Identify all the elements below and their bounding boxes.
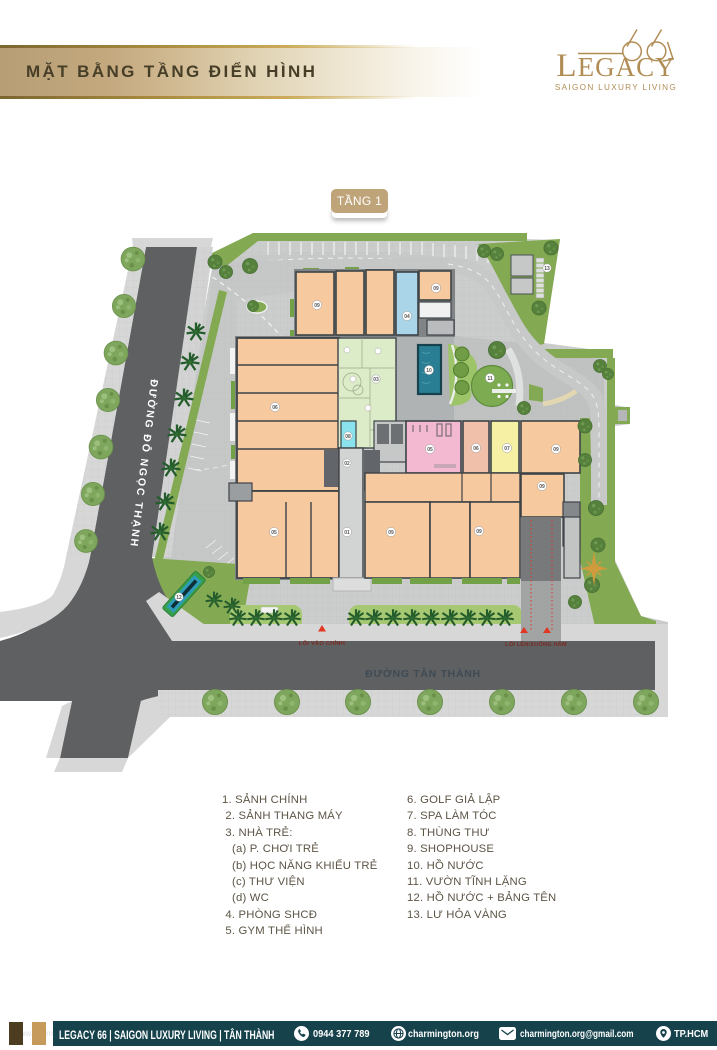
svg-text:09: 09: [314, 303, 320, 309]
svg-text:01: 01: [344, 530, 350, 536]
svg-text:08: 08: [345, 434, 351, 440]
svg-text:ĐƯỜNG TÂN THÀNH: ĐƯỜNG TÂN THÀNH: [365, 667, 481, 680]
svg-text:09: 09: [553, 447, 559, 453]
svg-text:11: 11: [487, 376, 493, 382]
svg-text:04: 04: [404, 314, 410, 320]
svg-text:13: 13: [544, 266, 550, 272]
svg-text:09: 09: [539, 484, 545, 490]
svg-text:02: 02: [344, 461, 350, 467]
svg-text:LỐI VÀO CHÍNH: LỐI VÀO CHÍNH: [299, 639, 345, 647]
svg-text:12: 12: [176, 595, 182, 601]
svg-text:06: 06: [473, 446, 479, 452]
svg-text:09: 09: [388, 530, 394, 536]
svg-text:06: 06: [272, 405, 278, 411]
svg-text:07: 07: [504, 446, 510, 452]
svg-text:10: 10: [426, 368, 432, 374]
svg-text:05: 05: [271, 530, 277, 536]
svg-text:LỐI LÊN/XUỐNG HẦM: LỐI LÊN/XUỐNG HẦM: [505, 640, 567, 648]
svg-text:03: 03: [373, 377, 379, 383]
svg-text:09: 09: [476, 529, 482, 535]
svg-text:09: 09: [433, 286, 439, 292]
svg-text:05: 05: [427, 447, 433, 453]
